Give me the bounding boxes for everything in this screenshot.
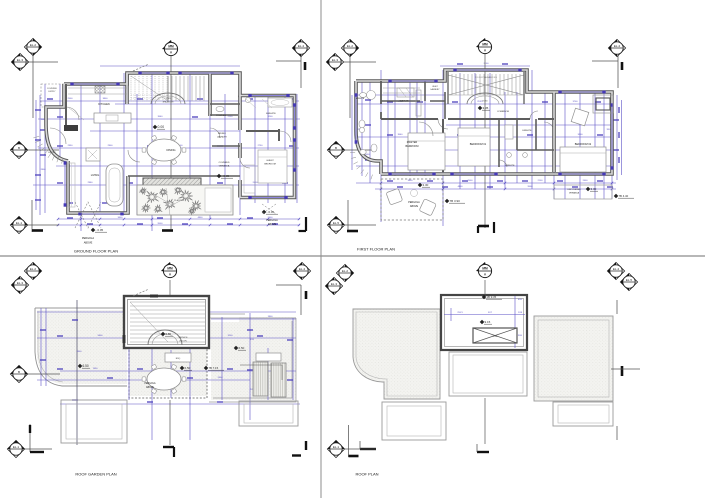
svg-text:EL.2: EL.2 bbox=[30, 267, 37, 271]
svg-text:2500: 2500 bbox=[68, 98, 74, 100]
svg-text:ABOVE: ABOVE bbox=[146, 386, 154, 389]
svg-text:MM: MM bbox=[482, 267, 488, 271]
svg-text:6.55: 6.55 bbox=[166, 332, 172, 336]
svg-text:4800: 4800 bbox=[458, 186, 464, 188]
svg-text:2800: 2800 bbox=[41, 169, 47, 171]
svg-text:7B 4.40: 7B 4.40 bbox=[619, 194, 629, 198]
svg-text:BRUNO: BRUNO bbox=[218, 133, 226, 135]
svg-text:2100: 2100 bbox=[228, 116, 234, 118]
svg-text:EL.5: EL.5 bbox=[333, 221, 340, 225]
svg-text:2400: 2400 bbox=[583, 180, 589, 182]
svg-text:LAUNDRY: LAUNDRY bbox=[217, 135, 228, 138]
svg-text:PLANTER: PLANTER bbox=[174, 199, 185, 202]
svg-text:EL.2: EL.2 bbox=[347, 44, 354, 48]
svg-text:1B 9.35: 1B 9.35 bbox=[487, 295, 497, 299]
svg-text:3300: 3300 bbox=[77, 351, 83, 353]
svg-text:EL.1: EL.1 bbox=[13, 445, 20, 449]
svg-text:COVERED: COVERED bbox=[47, 88, 58, 90]
svg-text:BEDROOM: BEDROOM bbox=[264, 164, 275, 166]
svg-text:7B 3.90: 7B 3.90 bbox=[450, 199, 461, 203]
svg-text:- 0.05: - 0.05 bbox=[267, 210, 275, 214]
svg-text:3200: 3200 bbox=[228, 335, 234, 337]
svg-text:ENSUITE: ENSUITE bbox=[505, 165, 515, 167]
svg-text:3.35: 3.35 bbox=[483, 106, 489, 110]
svg-text:BEDROOM: BEDROOM bbox=[406, 145, 419, 148]
svg-text:3540: 3540 bbox=[398, 134, 404, 136]
svg-text:B: B bbox=[18, 146, 20, 150]
svg-text:01067: 01067 bbox=[432, 86, 437, 88]
svg-text:3200: 3200 bbox=[578, 134, 584, 136]
svg-text:DINING: DINING bbox=[166, 148, 175, 152]
svg-text:3.30: 3.30 bbox=[423, 183, 429, 187]
svg-text:PERGOLA: PERGOLA bbox=[82, 237, 94, 240]
svg-text:VOID: VOID bbox=[493, 336, 498, 338]
svg-text:R O O F P L A N A B O V E: R O O F P L A N A B O V E bbox=[475, 76, 497, 79]
svg-text:EL.3: EL.3 bbox=[331, 282, 338, 286]
svg-text:MASTER: MASTER bbox=[407, 141, 418, 144]
svg-text:- 0.05: - 0.05 bbox=[222, 174, 230, 178]
svg-text:UNCOVERED: UNCOVERED bbox=[567, 189, 581, 191]
svg-text:1800: 1800 bbox=[268, 316, 274, 318]
svg-text:3800: 3800 bbox=[103, 98, 109, 100]
svg-text:2XX1: 2XX1 bbox=[457, 312, 463, 314]
svg-text:6.50: 6.50 bbox=[83, 364, 89, 368]
svg-text:ENTRY: ENTRY bbox=[48, 152, 56, 154]
svg-text:9.15: 9.15 bbox=[485, 320, 491, 324]
svg-text:2960: 2960 bbox=[88, 182, 94, 184]
svg-text:2900: 2900 bbox=[108, 145, 114, 147]
svg-text:EL.4: EL.4 bbox=[298, 44, 305, 48]
svg-text:CORRIDOR: CORRIDOR bbox=[497, 111, 509, 113]
svg-text:0.00: 0.00 bbox=[158, 125, 165, 129]
svg-text:(ROOF): (ROOF) bbox=[179, 340, 187, 342]
svg-text:5800: 5800 bbox=[98, 335, 104, 337]
svg-text:2400: 2400 bbox=[253, 182, 259, 184]
svg-text:3.30: 3.30 bbox=[591, 187, 597, 191]
svg-text:2500: 2500 bbox=[468, 180, 474, 182]
svg-text:6.50: 6.50 bbox=[185, 366, 191, 370]
svg-text:GUEST: GUEST bbox=[266, 160, 274, 162]
svg-text:3800: 3800 bbox=[408, 180, 414, 182]
svg-text:BRQ: BRQ bbox=[176, 358, 181, 360]
svg-text:2100: 2100 bbox=[484, 63, 490, 65]
svg-text:2750: 2750 bbox=[258, 145, 264, 147]
svg-text:B: B bbox=[18, 370, 20, 374]
svg-text:LIVING: LIVING bbox=[91, 173, 100, 177]
svg-text:ABOVE: ABOVE bbox=[84, 241, 93, 244]
svg-text:BEDROOM 01: BEDROOM 01 bbox=[470, 143, 487, 146]
svg-text:EL.3: EL.3 bbox=[332, 58, 339, 62]
svg-text:MM: MM bbox=[167, 267, 173, 271]
svg-text:ROOF GARDEN PLAN: ROOF GARDEN PLAN bbox=[75, 472, 116, 477]
svg-text:ABOVE: ABOVE bbox=[268, 223, 277, 226]
svg-text:PERGOLA: PERGOLA bbox=[144, 382, 156, 385]
svg-text:3540: 3540 bbox=[158, 116, 164, 118]
svg-text:GROUND FLOOR PLAN: GROUND FLOOR PLAN bbox=[74, 249, 118, 254]
svg-text:VOID: VOID bbox=[482, 101, 488, 103]
svg-text:6.50: 6.50 bbox=[239, 346, 245, 350]
svg-text:ENSUITE: ENSUITE bbox=[266, 113, 276, 115]
svg-text:EL.4: EL.4 bbox=[613, 267, 620, 271]
svg-text:VERANDA: VERANDA bbox=[219, 165, 230, 168]
svg-text:EL.4: EL.4 bbox=[614, 44, 621, 48]
svg-text:B: B bbox=[335, 146, 337, 150]
svg-text:EL.1: EL.1 bbox=[16, 221, 23, 225]
svg-text:SERVICE: SERVICE bbox=[178, 337, 188, 339]
svg-text:EL.2: EL.2 bbox=[342, 269, 349, 273]
svg-text:LAUNDRY: LAUNDRY bbox=[430, 88, 440, 91]
svg-text:9500: 9500 bbox=[158, 223, 164, 225]
svg-text:EL.3: EL.3 bbox=[17, 58, 24, 62]
svg-text:PERGOLA: PERGOLA bbox=[266, 219, 278, 222]
svg-text:- 0.05: - 0.05 bbox=[96, 228, 104, 232]
svg-text:VERANDA: VERANDA bbox=[569, 192, 580, 195]
svg-text:3700: 3700 bbox=[573, 101, 579, 103]
svg-text:2100: 2100 bbox=[538, 180, 544, 182]
svg-text:ENSUITE: ENSUITE bbox=[356, 98, 365, 100]
svg-text:FIRST FLOOR PLAN: FIRST FLOOR PLAN bbox=[357, 247, 395, 252]
svg-text:EL.3: EL.3 bbox=[17, 281, 24, 285]
svg-text:7430: 7430 bbox=[93, 368, 99, 370]
svg-text:ROOF PLAN: ROOF PLAN bbox=[355, 472, 378, 477]
svg-text:VOID: VOID bbox=[165, 98, 171, 100]
svg-text:3400: 3400 bbox=[118, 217, 124, 219]
svg-text:BEDROOM 02: BEDROOM 02 bbox=[575, 143, 592, 146]
svg-text:EL.2: EL.2 bbox=[30, 43, 37, 47]
svg-text:4800: 4800 bbox=[198, 217, 204, 219]
svg-text:EL.5: EL.5 bbox=[626, 278, 633, 282]
svg-text:ENTRY: ENTRY bbox=[48, 91, 56, 93]
svg-text:KITCHEN: KITCHEN bbox=[98, 102, 110, 106]
svg-text:POWDER: POWDER bbox=[216, 115, 226, 117]
svg-text:COVERED: COVERED bbox=[219, 162, 230, 164]
svg-text:2400: 2400 bbox=[218, 377, 224, 379]
svg-text:MM: MM bbox=[482, 43, 488, 47]
svg-text:2350: 2350 bbox=[68, 145, 74, 147]
svg-text:3200: 3200 bbox=[268, 116, 274, 118]
svg-text:EL.1: EL.1 bbox=[333, 445, 340, 449]
svg-text:3HA ABOVE: 3HA ABOVE bbox=[162, 101, 174, 104]
svg-text:7B 7.15: 7B 7.15 bbox=[209, 366, 219, 370]
svg-text:MM: MM bbox=[168, 45, 174, 49]
svg-text:9500: 9500 bbox=[528, 186, 534, 188]
svg-text:ABOVE: ABOVE bbox=[410, 205, 419, 208]
svg-text:PERGOLA: PERGOLA bbox=[408, 201, 420, 204]
svg-text:WALK-IN: WALK-IN bbox=[400, 100, 409, 103]
svg-text:EL.4: EL.4 bbox=[299, 267, 306, 271]
svg-text:ENSUITE: ENSUITE bbox=[522, 130, 532, 132]
